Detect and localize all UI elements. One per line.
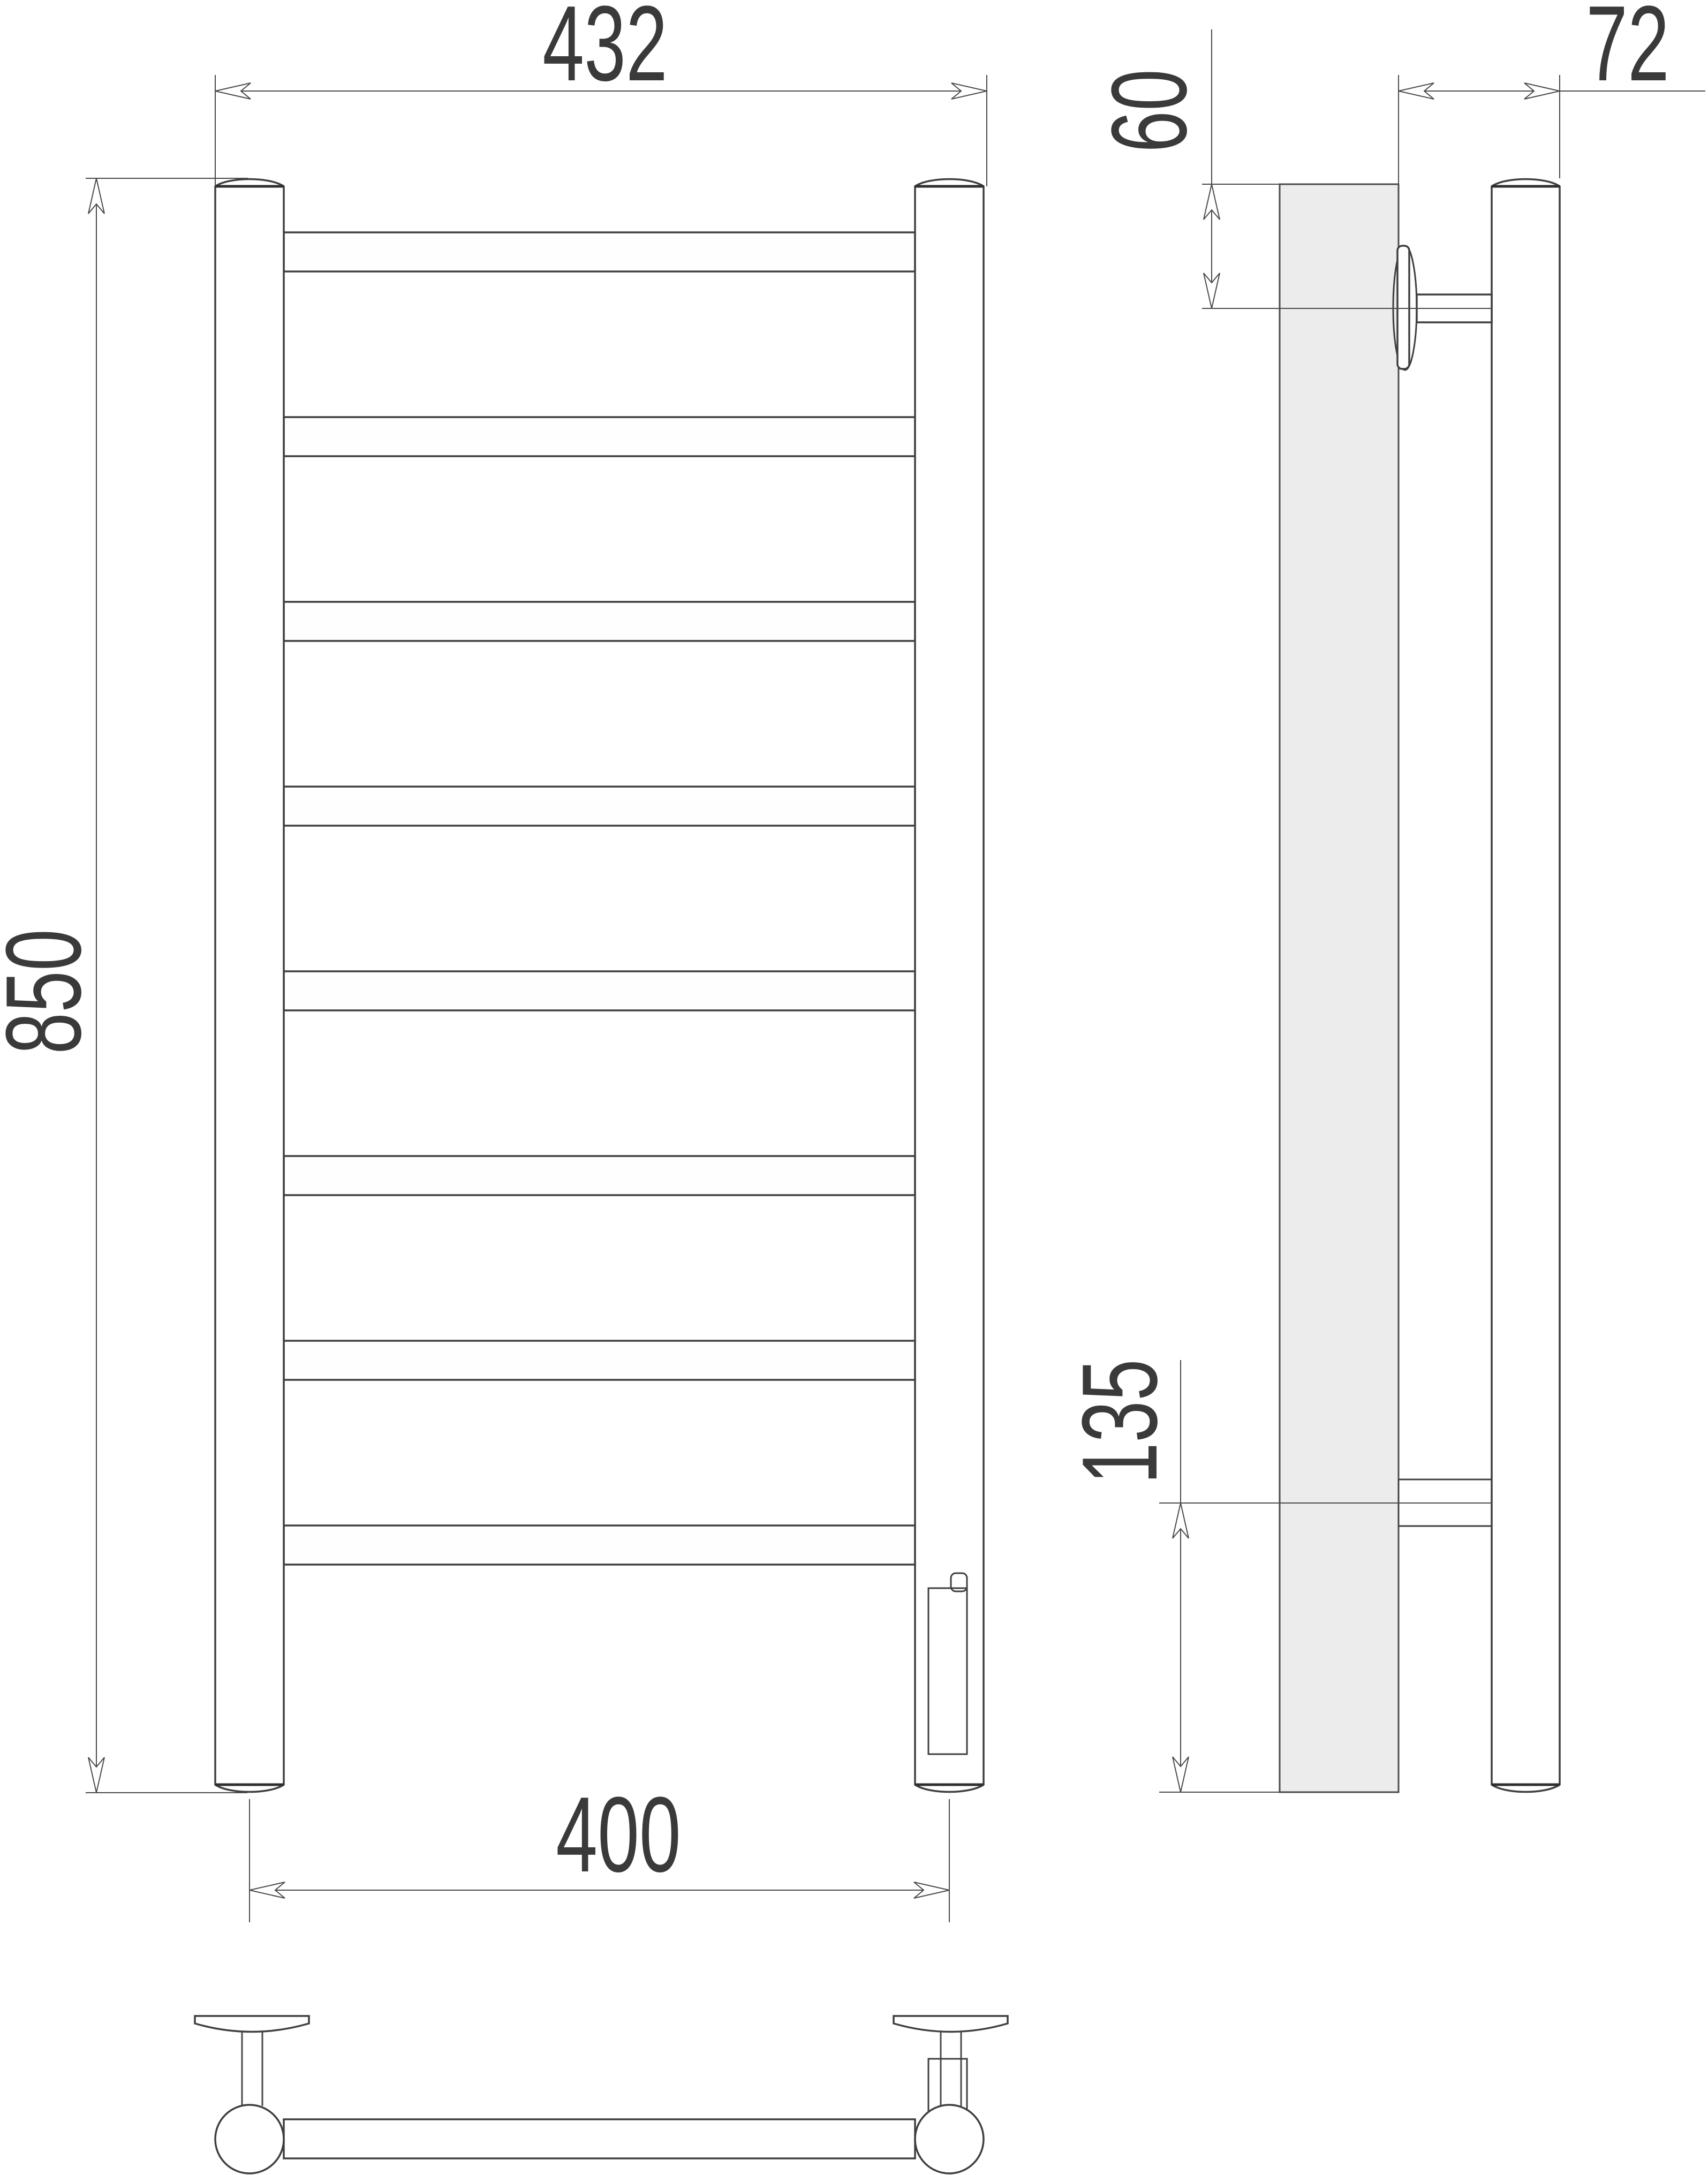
side-view [1280, 179, 1560, 1793]
rung [284, 602, 915, 641]
dim-label-432: 432 [542, 0, 668, 103]
rung-set [284, 232, 915, 1565]
drawing-sheet: 432 850 400 72 60 [0, 0, 1708, 2175]
dim-label-60: 60 [1089, 69, 1209, 153]
rung [284, 1525, 915, 1565]
rung [284, 232, 915, 271]
dim-overall-depth: 72 [1399, 0, 1705, 184]
plan-wall-plate-left [195, 2016, 309, 2032]
rung [284, 1156, 915, 1195]
plan-bracket-stem-right [941, 2030, 961, 2106]
dim-rail-spacing: 400 [250, 1774, 949, 1922]
dim-label-135: 135 [1060, 1359, 1180, 1484]
right-rail [915, 179, 984, 1792]
plan-bottom-tube [284, 2119, 915, 2158]
plan-rail-circle-right [915, 2105, 984, 2173]
front-view [215, 179, 984, 1792]
dim-label-400: 400 [556, 1774, 681, 1894]
dim-label-72: 72 [1586, 0, 1669, 103]
dim-overall-height: 850 [0, 178, 248, 1793]
plan-view [195, 2016, 1008, 2173]
left-rail [215, 179, 284, 1792]
side-rail [1492, 179, 1560, 1792]
dim-label-850: 850 [0, 929, 103, 1054]
wall-panel [1280, 184, 1399, 1792]
bracket-wall-plate [1397, 246, 1409, 369]
dim-bottom-offset: 135 [1060, 1359, 1492, 1792]
rung [284, 417, 915, 456]
plan-bracket-stem-left [242, 2030, 262, 2106]
rung [284, 1341, 915, 1380]
plan-wall-plate-right [894, 2016, 1008, 2032]
towel-rail-technical-drawing: 432 850 400 72 60 [0, 0, 1708, 2175]
dim-overall-width: 432 [215, 0, 987, 186]
plan-rail-circle-left [215, 2105, 284, 2173]
rung [284, 971, 915, 1010]
rung [284, 787, 915, 826]
